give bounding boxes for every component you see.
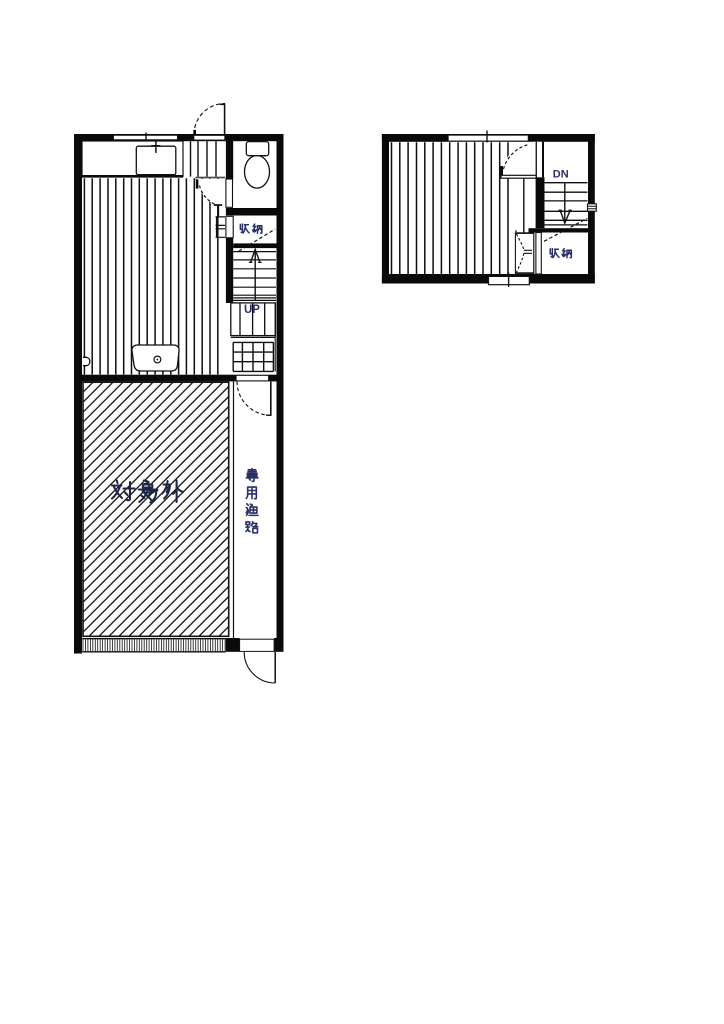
svg-text:DN: DN: [553, 169, 569, 181]
svg-text:UP: UP: [244, 304, 260, 316]
